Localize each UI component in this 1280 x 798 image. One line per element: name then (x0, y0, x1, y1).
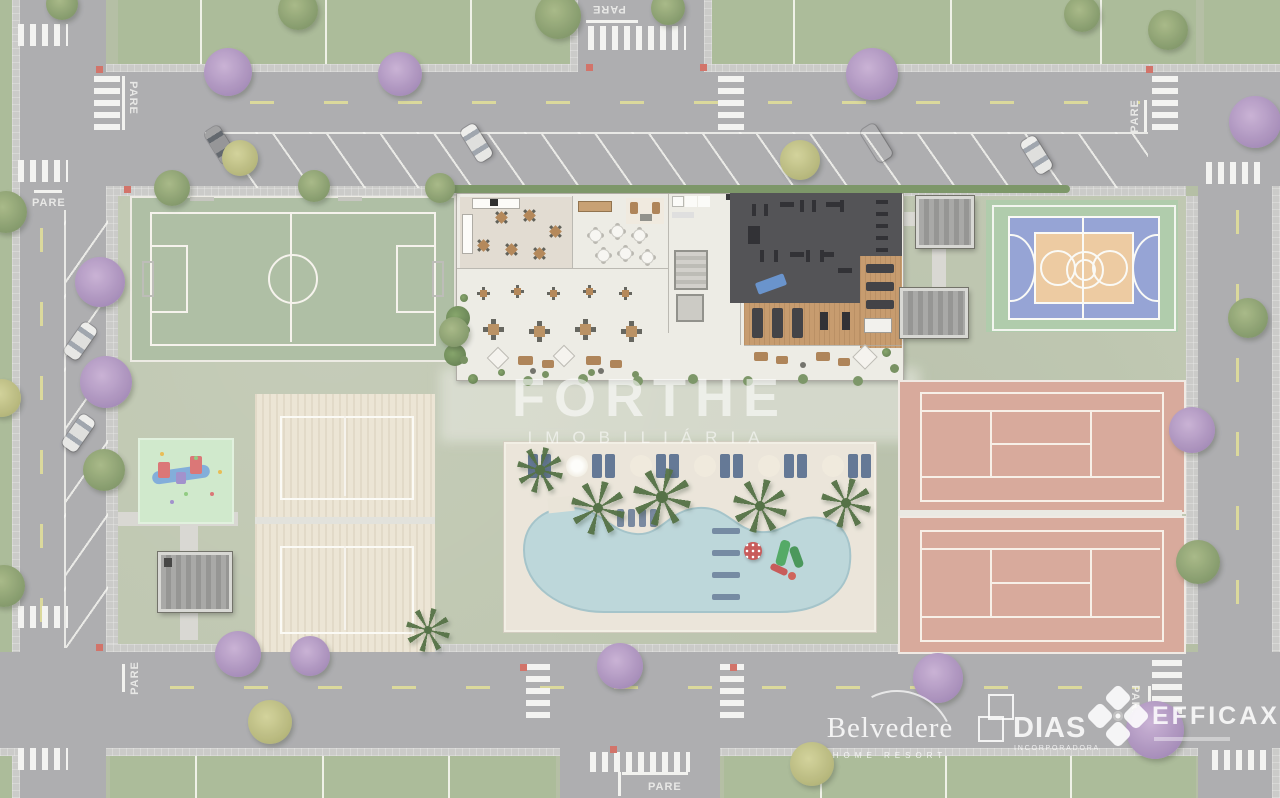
watermark: FORTHE IMOBILIÁRIA (440, 372, 860, 448)
dias-name: DIAS (1013, 712, 1086, 745)
efficax-center-icon (1113, 711, 1123, 721)
watermark-brand: FORTHE (440, 372, 860, 424)
efficax-name: EFFICAX (1152, 702, 1280, 731)
efficax-tagline-bar (1154, 737, 1230, 741)
site-plan-scene: PARE PARE PARE PARE PARE PARE PARE (0, 0, 1280, 798)
belvedere-tagline: HOME RESORT (798, 751, 982, 760)
efficax-petal-icon (1122, 702, 1150, 730)
belvedere-logo: Belvedere HOME RESORT (798, 672, 982, 772)
efficax-petal-icon (1104, 684, 1132, 712)
dias-square-icon (978, 716, 1004, 742)
efficax-petal-icon (1104, 720, 1132, 748)
belvedere-name: Belvedere (798, 712, 982, 745)
dias-logo: DIAS INCORPORADORA (976, 690, 1086, 760)
efficax-petal-icon (1086, 702, 1114, 730)
watermark-subtitle: IMOBILIÁRIA (440, 428, 860, 448)
efficax-logo: EFFICAX (1086, 686, 1256, 758)
